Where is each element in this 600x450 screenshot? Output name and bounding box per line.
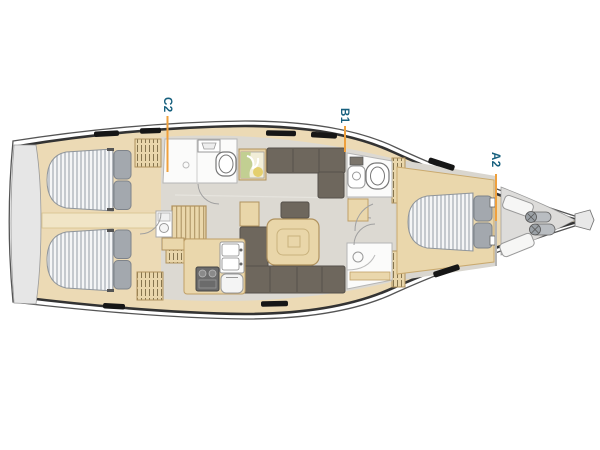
aft-cabin-starboard <box>47 148 131 211</box>
bed-pillow <box>474 196 492 221</box>
marker-label-a2: A2 <box>489 152 501 168</box>
marker-label-b1: B1 <box>338 108 350 124</box>
toilet <box>366 163 389 189</box>
head-sink <box>348 166 365 188</box>
bed-latch <box>490 236 495 245</box>
galley-fridge <box>221 274 243 293</box>
bed-latch <box>107 229 114 232</box>
sofa-top-return <box>318 172 344 198</box>
bed-mattress <box>47 229 113 291</box>
bed-latch <box>107 208 114 211</box>
bed-pillow <box>474 223 492 248</box>
bed-pillow <box>114 181 131 210</box>
yacht-plan-svg: C2 B1 A2 <box>0 0 600 450</box>
louver-locker <box>137 272 163 300</box>
toilet <box>216 152 236 176</box>
cabin-corridor <box>42 213 163 228</box>
sofa-top <box>267 148 345 173</box>
sail-locker <box>499 187 575 258</box>
bed-pillow <box>114 261 131 290</box>
shelf <box>350 157 363 165</box>
bed-mattress <box>47 149 113 211</box>
forward-cabin <box>397 167 496 274</box>
galley <box>184 239 245 294</box>
salon-table <box>267 219 319 265</box>
sink-bowl <box>160 224 169 233</box>
swim-platform <box>11 145 41 304</box>
bed-pillow <box>114 151 131 180</box>
bed-pillow <box>114 230 131 259</box>
bed-mattress <box>408 193 473 251</box>
marker-label-c2: C2 <box>161 97 173 113</box>
aft-cabin-port <box>47 229 131 292</box>
sofa-bottom <box>242 266 345 293</box>
counter-front <box>350 272 390 280</box>
bow-fitting <box>575 210 594 230</box>
bed-latch <box>107 148 114 151</box>
side-table <box>240 202 259 226</box>
salon-seat <box>281 202 309 218</box>
bed-latch <box>490 198 495 207</box>
nav-chart-table <box>239 149 266 180</box>
yacht-layout-diagram: C2 B1 A2 <box>0 0 600 450</box>
bed-latch <box>107 289 114 292</box>
galley-sink <box>220 242 244 273</box>
louver-locker <box>135 139 161 167</box>
galley-stove <box>196 267 219 291</box>
companionway-stairs <box>172 206 206 239</box>
lower-steps-louver <box>166 250 186 263</box>
lower-step <box>162 238 184 250</box>
